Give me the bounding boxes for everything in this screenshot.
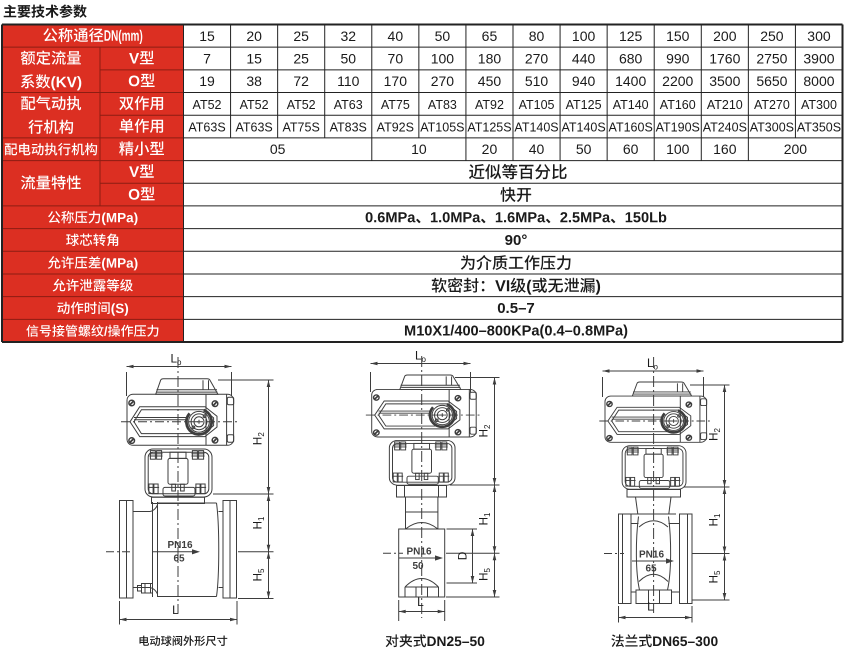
svg-text:65: 65 xyxy=(645,564,657,575)
svg-text:15: 15 xyxy=(246,51,262,67)
svg-text:AT63S: AT63S xyxy=(235,121,272,135)
svg-text:AT52: AT52 xyxy=(287,98,316,112)
svg-text:160: 160 xyxy=(713,141,737,157)
svg-text:440: 440 xyxy=(572,51,596,67)
svg-text:3500: 3500 xyxy=(709,73,740,89)
svg-text:8000: 8000 xyxy=(803,73,834,89)
svg-text:AT92S: AT92S xyxy=(377,121,414,135)
svg-text:H5: H5 xyxy=(251,568,266,582)
svg-text:AT350S: AT350S xyxy=(797,121,841,135)
svg-text:50: 50 xyxy=(576,141,592,157)
svg-text:100: 100 xyxy=(572,28,596,44)
svg-text:L: L xyxy=(417,595,424,609)
svg-text:250: 250 xyxy=(760,28,784,44)
svg-text:AT140: AT140 xyxy=(613,98,649,112)
svg-text:D: D xyxy=(456,552,470,561)
svg-text:50: 50 xyxy=(412,561,424,572)
svg-text:65: 65 xyxy=(482,28,498,44)
svg-text:AT52: AT52 xyxy=(193,98,222,112)
svg-text:AT300: AT300 xyxy=(801,98,837,112)
svg-text:AT63S: AT63S xyxy=(188,121,225,135)
svg-text:38: 38 xyxy=(246,73,262,89)
svg-text:AT140S: AT140S xyxy=(514,121,558,135)
svg-text:AT92: AT92 xyxy=(475,98,504,112)
svg-text:20: 20 xyxy=(482,141,498,157)
svg-text:PN16: PN16 xyxy=(639,550,664,561)
svg-text:40: 40 xyxy=(388,28,404,44)
svg-text:150: 150 xyxy=(666,28,690,44)
svg-text:AT105: AT105 xyxy=(519,98,555,112)
svg-text:H5: H5 xyxy=(477,567,492,581)
svg-text:300: 300 xyxy=(807,28,831,44)
svg-text:90°: 90° xyxy=(505,232,528,249)
svg-text:L: L xyxy=(647,600,654,614)
svg-text:200: 200 xyxy=(784,141,808,157)
svg-text:70: 70 xyxy=(388,51,404,67)
svg-text:200: 200 xyxy=(713,28,737,44)
svg-text:AT105S: AT105S xyxy=(420,121,464,135)
svg-text:5650: 5650 xyxy=(756,73,787,89)
svg-text:940: 940 xyxy=(572,73,596,89)
svg-text:60: 60 xyxy=(623,141,639,157)
svg-text:1400: 1400 xyxy=(615,73,646,89)
svg-text:H1: H1 xyxy=(707,513,722,527)
svg-text:AT140S: AT140S xyxy=(561,121,605,135)
svg-text:AT190S: AT190S xyxy=(656,121,700,135)
svg-text:19: 19 xyxy=(199,73,215,89)
svg-text:270: 270 xyxy=(431,73,455,89)
svg-text:AT52: AT52 xyxy=(240,98,269,112)
svg-text:AT125S: AT125S xyxy=(467,121,511,135)
svg-text:H2: H2 xyxy=(477,424,492,438)
svg-text:7: 7 xyxy=(203,51,211,67)
svg-text:72: 72 xyxy=(293,73,309,89)
svg-text:25: 25 xyxy=(293,51,309,67)
svg-text:40: 40 xyxy=(529,141,545,157)
svg-text:50: 50 xyxy=(435,28,451,44)
svg-text:100: 100 xyxy=(666,141,690,157)
svg-text:680: 680 xyxy=(619,51,643,67)
svg-text:L: L xyxy=(172,603,179,617)
svg-text:180: 180 xyxy=(478,51,502,67)
svg-text:H5: H5 xyxy=(707,570,722,584)
svg-text:270: 270 xyxy=(525,51,549,67)
svg-text:125: 125 xyxy=(619,28,643,44)
svg-text:Lo: Lo xyxy=(415,349,427,364)
svg-text:05: 05 xyxy=(270,141,286,157)
svg-text:H1: H1 xyxy=(477,512,492,526)
svg-text:H1: H1 xyxy=(251,516,266,530)
svg-text:450: 450 xyxy=(478,73,502,89)
svg-text:25: 25 xyxy=(293,28,309,44)
svg-text:2750: 2750 xyxy=(756,51,787,67)
svg-text:20: 20 xyxy=(246,28,262,44)
svg-text:PN16: PN16 xyxy=(167,540,192,551)
svg-text:AT300S: AT300S xyxy=(750,121,794,135)
svg-text:H2: H2 xyxy=(707,427,722,441)
svg-text:AT240S: AT240S xyxy=(703,121,747,135)
svg-text:AT160: AT160 xyxy=(660,98,696,112)
svg-text:1760: 1760 xyxy=(709,51,740,67)
svg-text:3900: 3900 xyxy=(803,51,834,67)
svg-text:AT210: AT210 xyxy=(707,98,743,112)
svg-text:10: 10 xyxy=(411,141,427,157)
svg-text:H2: H2 xyxy=(251,432,266,446)
svg-text:170: 170 xyxy=(384,73,408,89)
svg-text:32: 32 xyxy=(340,28,356,44)
svg-text:50: 50 xyxy=(340,51,356,67)
svg-text:AT270: AT270 xyxy=(754,98,790,112)
svg-text:2200: 2200 xyxy=(662,73,693,89)
svg-text:110: 110 xyxy=(337,73,360,89)
svg-text:AT83: AT83 xyxy=(428,98,457,112)
svg-text:Lo: Lo xyxy=(170,352,182,367)
svg-text:AT125: AT125 xyxy=(566,98,602,112)
svg-text:M10X1/400–800KPa(0.4–0.8MPa): M10X1/400–800KPa(0.4–0.8MPa) xyxy=(404,324,628,340)
svg-text:100: 100 xyxy=(431,51,455,67)
svg-text:AT75S: AT75S xyxy=(283,121,320,135)
svg-text:AT75: AT75 xyxy=(381,98,410,112)
svg-text:AT63: AT63 xyxy=(334,98,363,112)
svg-text:65: 65 xyxy=(173,554,185,565)
svg-text:0.5–7: 0.5–7 xyxy=(497,300,535,317)
svg-text:AT160S: AT160S xyxy=(609,121,653,135)
svg-text:510: 510 xyxy=(525,73,549,89)
svg-text:AT83S: AT83S xyxy=(330,121,367,135)
svg-text:80: 80 xyxy=(529,28,545,44)
svg-text:15: 15 xyxy=(199,28,215,44)
svg-text:Lo: Lo xyxy=(647,356,659,371)
svg-text:PN16: PN16 xyxy=(406,547,431,558)
svg-text:990: 990 xyxy=(666,51,690,67)
